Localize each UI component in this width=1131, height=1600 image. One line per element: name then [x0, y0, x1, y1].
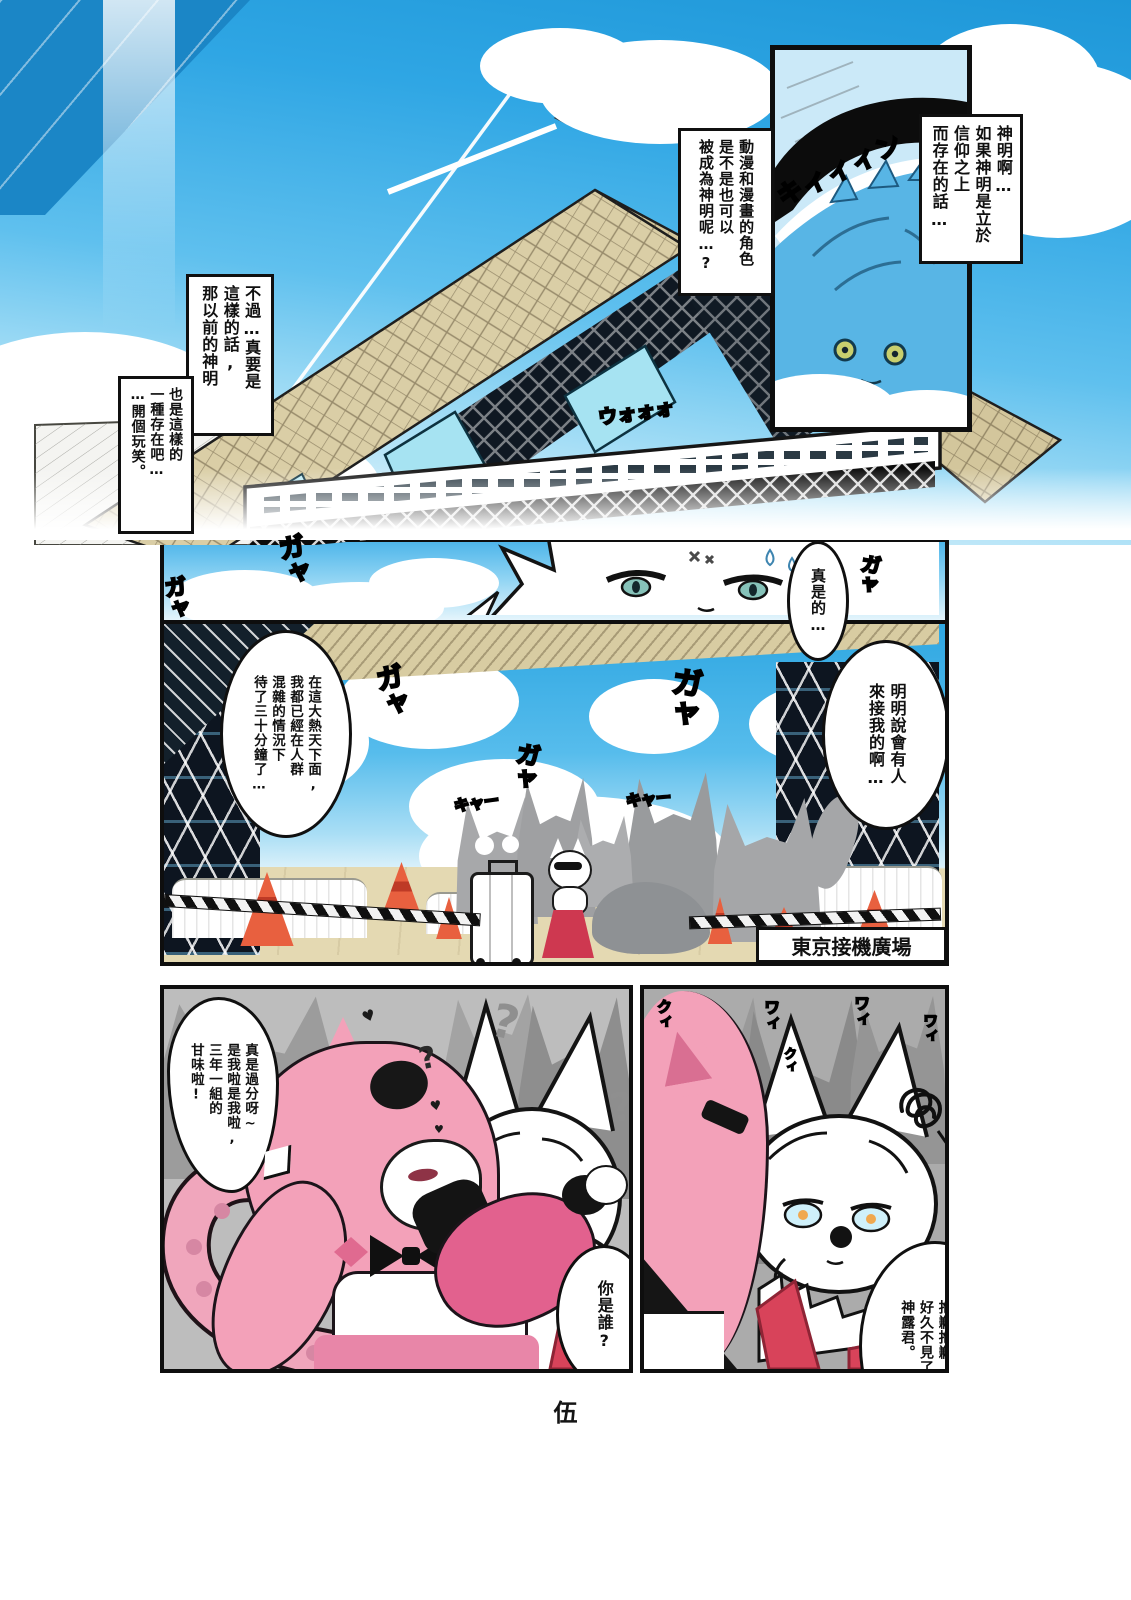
suitcase-wheel [476, 958, 485, 966]
speech-bubble-geez: 真是的… [787, 541, 849, 661]
speech-line: 在這大熱天下面, [304, 675, 322, 794]
speech-text: 真是的… [808, 568, 828, 635]
speech-text: 在這大熱天下面, 我都已經在人群 混雜的情況下 待了三十分鐘了… [250, 675, 322, 794]
speech-line: 甘味啦! [187, 1043, 205, 1147]
apron-bow-knot [402, 1247, 420, 1265]
crowd-creature-eye [502, 836, 519, 853]
sfx-kui: クィ [656, 999, 671, 1029]
heart-mark: ♥ [434, 1123, 444, 1136]
speech-box-however: 不過…真要是 這樣的話, 那以前的神明 [186, 274, 274, 436]
speech-line: 明明說會有人 [886, 683, 907, 788]
sfx-wai: ワィ [762, 999, 778, 1031]
speech-line: 抱歉抱歉, [935, 1300, 949, 1373]
speech-text: 讓你久等了, 抱歉抱歉, 好久不見了, 神露君。 [898, 1300, 950, 1373]
speech-line: 這樣的話, [219, 285, 240, 390]
speech-text: 動漫和漫畫的角色 是不是也可以 被成為神明呢…? [696, 139, 756, 273]
speech-line: 不過…真要是 [241, 285, 262, 390]
speech-line: 動漫和漫畫的角色 [736, 139, 756, 273]
sfx-gaya: ガャ [662, 664, 701, 730]
speech-line: 那以前的神明 [198, 285, 219, 390]
speech-text: 明明說會有人 來接我的啊… [865, 683, 908, 788]
speech-line: 三年一組的 [205, 1043, 223, 1147]
pink-girl-skirt [314, 1335, 539, 1369]
apology-panel: クィ ワィ クィ ワィ ワィ [640, 985, 949, 1373]
page-number: 伍 [0, 1393, 1131, 1428]
speech-text: 你是誰? [593, 1280, 614, 1351]
speech-box-anime-chars: 動漫和漫畫的角色 是不是也可以 被成為神明呢…? [678, 128, 774, 296]
speech-line: 而存在的話… [928, 125, 949, 244]
speech-line: 來接我的啊… [865, 683, 886, 788]
speech-line: 是不是也可以 [716, 139, 736, 273]
speech-text: 不過…真要是 這樣的話, 那以前的神明 [198, 285, 262, 390]
sfx-wai: ワィ [922, 1013, 937, 1043]
speech-line: 是我啦是我啦, [223, 1043, 241, 1147]
speech-line: 如果神明是立於 [971, 125, 992, 244]
speech-line: 你是誰? [593, 1280, 614, 1351]
suitcase-wheel [512, 958, 521, 966]
speech-bubble-waiting: 在這大熱天下面, 我都已經在人群 混雜的情況下 待了三十分鐘了… [220, 630, 352, 838]
speech-box-joking: 也是這樣的 一種存在吧… …開個玩笑。 [118, 376, 194, 534]
speech-line: 神明啊… [992, 125, 1013, 244]
meeting-panel: ? ? ? ♥ ♥ ♥ [160, 985, 633, 1373]
speech-line: 也是這樣的 [165, 387, 184, 479]
crowd-creature-eye [475, 836, 494, 855]
sfx-gaya: ガャ [160, 575, 188, 622]
speech-line: 被成為神明呢…? [696, 139, 716, 273]
annoyance-scribble [892, 1081, 949, 1161]
speech-line: 一種存在吧… [147, 387, 166, 479]
sfx-wai: ワィ [852, 995, 868, 1027]
fox-paw [584, 1165, 628, 1205]
sfx-gaya: ガャ [855, 553, 882, 596]
sfx-kui: クィ [782, 1047, 795, 1073]
speech-line: 真是的… [808, 568, 828, 635]
manga-page: キィィィン ウォォォ 神明啊… 如果神明是立於 信仰之上 而存在的話… 動漫和漫… [0, 0, 1131, 1600]
speech-text: 真是過分呀~ 是我啦是我啦, 三年一組的 甘味啦! [187, 1043, 259, 1147]
heart-mark: ♥ [429, 1098, 443, 1115]
speech-line: 好久不見了, [916, 1300, 935, 1373]
speech-line: 真是過分呀~ [241, 1043, 259, 1147]
fox-girl-sunglasses [554, 862, 582, 870]
plaza-panel: ガャ ガャ ガャ キャー キャー ワィ ワィ 東京接機廣場 在這大熱天下面, 我… [160, 620, 949, 966]
speech-line: …開個玩笑。 [128, 387, 147, 479]
plaza-sign: 東京接機廣場 [756, 927, 947, 963]
speech-line: 神露君。 [898, 1300, 917, 1373]
speech-line: 混雜的情況下 [268, 675, 286, 794]
speech-text: 也是這樣的 一種存在吧… …開個玩笑。 [128, 387, 184, 479]
speech-text: 神明啊… 如果神明是立於 信仰之上 而存在的話… [928, 125, 1014, 244]
fox-girl-head [548, 850, 592, 890]
speech-line: 信仰之上 [950, 125, 971, 244]
speech-line: 待了三十分鐘了… [250, 675, 268, 794]
pink-girl-sleeve-white [642, 1311, 724, 1372]
speech-bubble-pickup: 明明說會有人 來接我的啊… [822, 640, 949, 830]
sfx-kyaa: キャー [625, 786, 672, 811]
speech-line: 我都已經在人群 [286, 675, 304, 794]
speech-box-god-intro: 神明啊… 如果神明是立於 信仰之上 而存在的話… [919, 114, 1023, 264]
